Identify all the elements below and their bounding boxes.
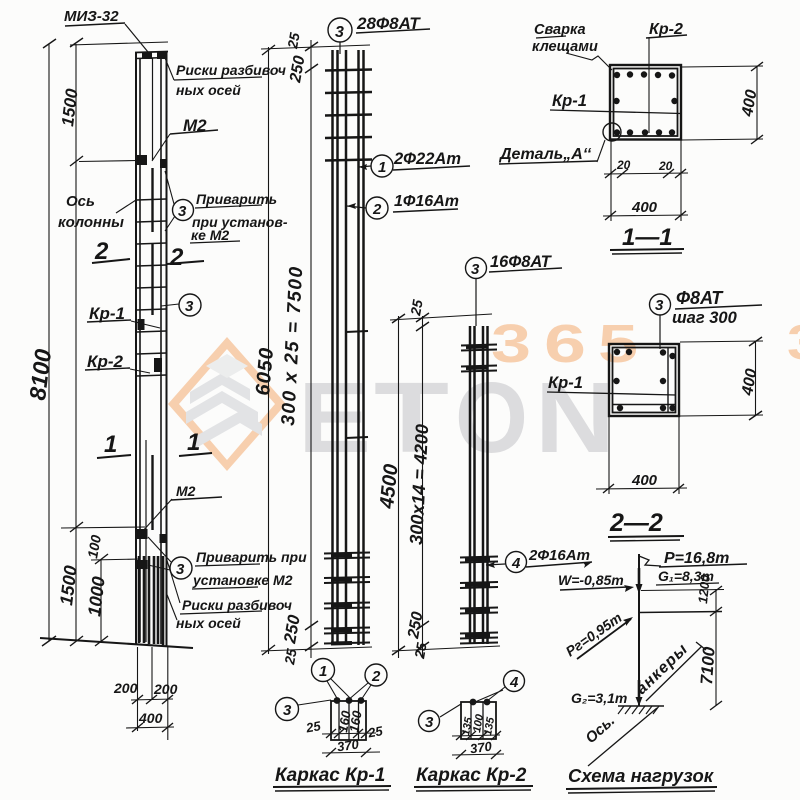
- svg-text:1200: 1200: [695, 573, 713, 604]
- svg-text:400: 400: [138, 710, 163, 726]
- svg-text:2: 2: [372, 201, 382, 218]
- svg-text:клещами: клещами: [532, 39, 598, 55]
- svg-text:шаг 300: шаг 300: [672, 309, 738, 327]
- svg-text:колонны: колонны: [58, 214, 124, 231]
- svg-text:Сварка: Сварка: [534, 22, 586, 38]
- svg-text:6050: 6050: [252, 346, 278, 396]
- svg-text:400: 400: [631, 472, 658, 489]
- svg-text:Схема нагрузок: Схема нагрузок: [568, 765, 715, 786]
- svg-text:370: 370: [469, 738, 493, 756]
- svg-text:370: 370: [336, 736, 360, 754]
- svg-text:Кр-1: Кр-1: [548, 374, 583, 392]
- svg-text:1: 1: [187, 429, 200, 456]
- svg-text:3: 3: [787, 316, 800, 370]
- svg-text:3: 3: [491, 314, 531, 374]
- svg-text:2—2: 2—2: [609, 509, 663, 537]
- svg-text:E: E: [298, 362, 371, 474]
- svg-text:1—1: 1—1: [622, 224, 673, 251]
- svg-text:3: 3: [335, 24, 344, 41]
- svg-text:1: 1: [104, 431, 117, 458]
- svg-text:ных осей: ных осей: [176, 615, 241, 631]
- svg-text:2: 2: [169, 244, 184, 271]
- svg-text:Приварить при: Приварить при: [196, 549, 307, 565]
- svg-text:1Ф16Ат: 1Ф16Ат: [394, 193, 459, 210]
- svg-text:Кр-1: Кр-1: [552, 92, 587, 110]
- svg-text:3: 3: [283, 702, 292, 719]
- svg-text:200: 200: [113, 680, 138, 696]
- svg-text:2Ф22Ат: 2Ф22Ат: [393, 150, 461, 168]
- svg-text:400: 400: [631, 199, 658, 216]
- svg-text:4: 4: [511, 555, 521, 572]
- svg-text:Каркас Кр-2: Каркас Кр-2: [416, 765, 527, 786]
- svg-text:200: 200: [153, 681, 178, 697]
- svg-text:Деталь„А‘‘: Деталь„А‘‘: [498, 146, 592, 163]
- svg-text:2Ф16Ат: 2Ф16Ат: [528, 547, 590, 564]
- svg-text:3: 3: [185, 298, 194, 315]
- svg-text:М2: М2: [176, 483, 196, 499]
- svg-text:25: 25: [411, 641, 430, 660]
- svg-text:МИЗ-32: МИЗ-32: [64, 8, 119, 25]
- svg-text:3: 3: [655, 297, 664, 314]
- svg-text:3: 3: [176, 561, 185, 578]
- svg-text:ке М2: ке М2: [191, 227, 229, 243]
- svg-text:20: 20: [616, 158, 631, 172]
- svg-text:6: 6: [544, 314, 586, 374]
- svg-text:1: 1: [319, 663, 327, 680]
- svg-text:G₂=3,1т: G₂=3,1т: [571, 690, 627, 706]
- svg-text:3: 3: [178, 203, 187, 220]
- svg-text:W=-0,85т: W=-0,85т: [558, 572, 624, 588]
- svg-text:7100: 7100: [697, 646, 719, 686]
- svg-text:Ф8АТ: Ф8АТ: [676, 288, 724, 308]
- svg-text:Ось: Ось: [66, 193, 95, 210]
- svg-text:25: 25: [407, 298, 426, 317]
- svg-text:1: 1: [378, 159, 386, 176]
- svg-text:2: 2: [371, 668, 381, 685]
- svg-text:16Ф8АТ: 16Ф8АТ: [490, 253, 553, 271]
- svg-text:3: 3: [471, 261, 480, 278]
- svg-text:Риски разбивоч: Риски разбивоч: [182, 597, 292, 613]
- svg-text:Каркас Кр-1: Каркас Кр-1: [275, 765, 385, 786]
- svg-text:ных осей: ных осей: [176, 82, 241, 98]
- svg-text:установке М2: установке М2: [192, 572, 293, 588]
- svg-text:3: 3: [425, 714, 434, 731]
- svg-text:Приварить: Приварить: [196, 191, 277, 207]
- svg-text:O: O: [455, 362, 528, 474]
- svg-text:Риски разбивоч: Риски разбивоч: [176, 62, 286, 78]
- svg-text:4: 4: [509, 674, 519, 691]
- svg-text:20: 20: [658, 159, 673, 173]
